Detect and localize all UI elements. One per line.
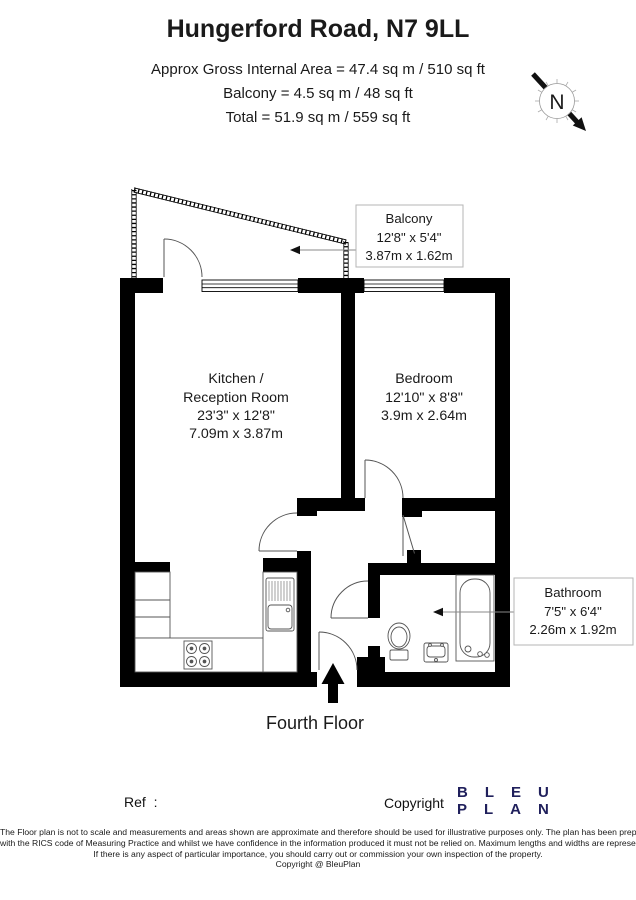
kitchen-sink — [266, 578, 294, 631]
disclaimer: The Floor plan is not to scale and measu… — [0, 827, 636, 870]
kitchen-dims-metric: 7.09m x 3.87m — [189, 426, 283, 442]
disclaimer-line3: If there is any aspect of particular imp… — [0, 849, 636, 860]
leader-arrow-icon — [290, 246, 300, 254]
bathroom-door — [331, 581, 368, 618]
copyright-label: Copyright — [384, 795, 444, 811]
compass-north-icon: N — [533, 74, 586, 131]
balcony-dims-metric: 3.87m x 1.62m — [365, 248, 452, 263]
bathroom-fixtures — [388, 575, 494, 662]
balcony-door — [164, 239, 202, 277]
cupboard-door — [403, 515, 415, 556]
balcony-label: Balcony — [386, 211, 433, 226]
ref-label: Ref : — [124, 794, 157, 810]
entrance-door — [319, 632, 357, 670]
hob — [184, 641, 212, 669]
logo-line1: BLEU — [457, 784, 566, 801]
bedroom-dims-imperial: 12'10" x 8'8" — [385, 390, 463, 406]
basin — [424, 643, 448, 662]
kitchen-window — [202, 280, 298, 292]
kitchen-fixtures — [135, 572, 297, 672]
disclaimer-line4: Copyright @ BleuPlan — [0, 859, 636, 870]
floorplan-page: Hungerford Road, N7 9LL Approx Gross Int… — [0, 0, 636, 900]
floorplan-drawing: N — [0, 0, 636, 900]
balcony-callout: Balcony 12'8" x 5'4" 3.87m x 1.62m — [290, 205, 463, 267]
bedroom-window — [364, 280, 444, 292]
room-labels: Kitchen / Reception Room 23'3" x 12'8" 7… — [183, 371, 467, 442]
kitchen-label-line1: Kitchen / — [208, 371, 263, 387]
bleuplan-logo: BLEU PLAN — [457, 784, 566, 818]
balcony-dims-imperial: 12'8" x 5'4" — [377, 230, 442, 245]
disclaimer-line2: with the RICS code of Measuring Practice… — [0, 838, 636, 849]
disclaimer-line1: The Floor plan is not to scale and measu… — [0, 827, 636, 838]
bedroom-label: Bedroom — [395, 371, 453, 387]
kitchen-door — [259, 513, 297, 551]
bedroom-door — [365, 460, 403, 498]
bedroom-dims-metric: 3.9m x 2.64m — [381, 408, 467, 424]
compass-north-label: N — [549, 91, 564, 114]
bathroom-dims-metric: 2.26m x 1.92m — [529, 622, 616, 637]
leader-arrow-icon — [433, 608, 443, 616]
kitchen-label-line2: Reception Room — [183, 390, 289, 406]
bathroom-label: Bathroom — [544, 585, 601, 600]
floor-label: Fourth Floor — [266, 713, 364, 733]
entrance-arrow-icon — [322, 663, 345, 703]
bathtub — [456, 575, 494, 661]
bathroom-dims-imperial: 7'5" x 6'4" — [544, 604, 602, 619]
toilet — [388, 623, 410, 660]
kitchen-dims-imperial: 23'3" x 12'8" — [197, 408, 275, 424]
outer-walls — [120, 278, 510, 687]
logo-line2: PLAN — [457, 801, 566, 818]
